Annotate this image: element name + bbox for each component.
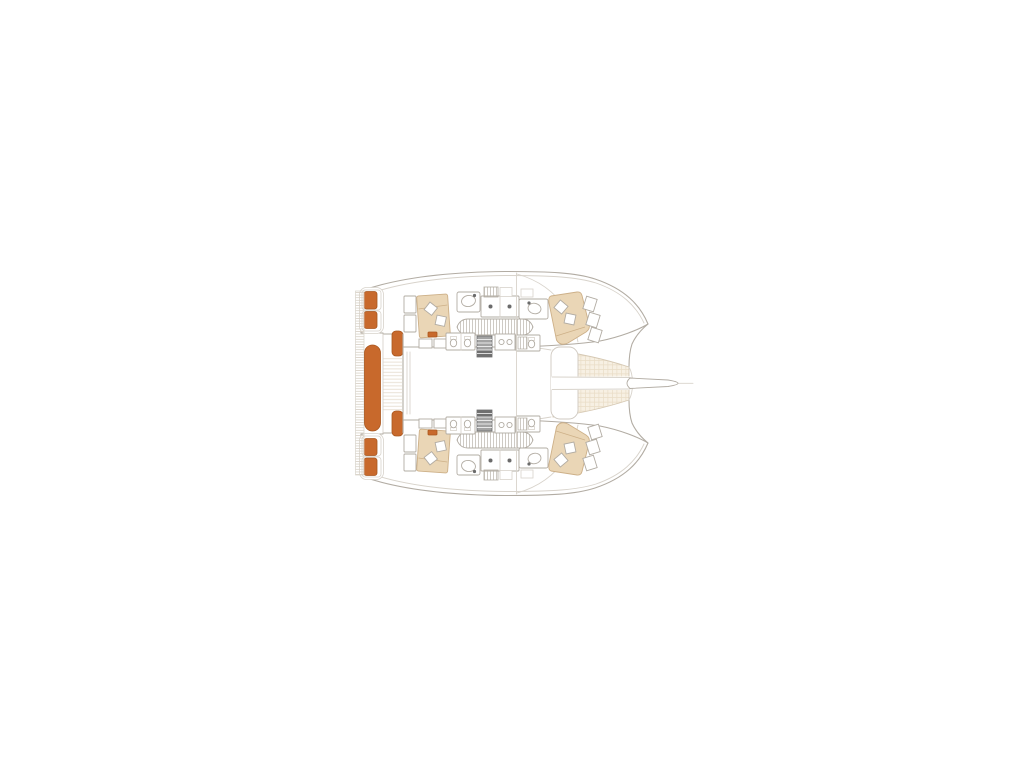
forward-cabin bbox=[549, 292, 602, 344]
saloon bbox=[403, 334, 410, 433]
swim-platform bbox=[356, 291, 365, 475]
cockpit-bench bbox=[365, 345, 381, 431]
cockpit-floor bbox=[383, 356, 402, 411]
shower-panel bbox=[518, 337, 527, 349]
aft-cabin-bed bbox=[417, 294, 451, 338]
cabin-accent-shelf bbox=[428, 332, 437, 337]
catamaran-floorplan bbox=[0, 0, 1024, 768]
bowsprit bbox=[627, 378, 693, 389]
cockpit-seat bbox=[392, 331, 403, 356]
catamaran-floorplan-page bbox=[0, 0, 1024, 768]
companionway-stairs bbox=[477, 336, 492, 357]
